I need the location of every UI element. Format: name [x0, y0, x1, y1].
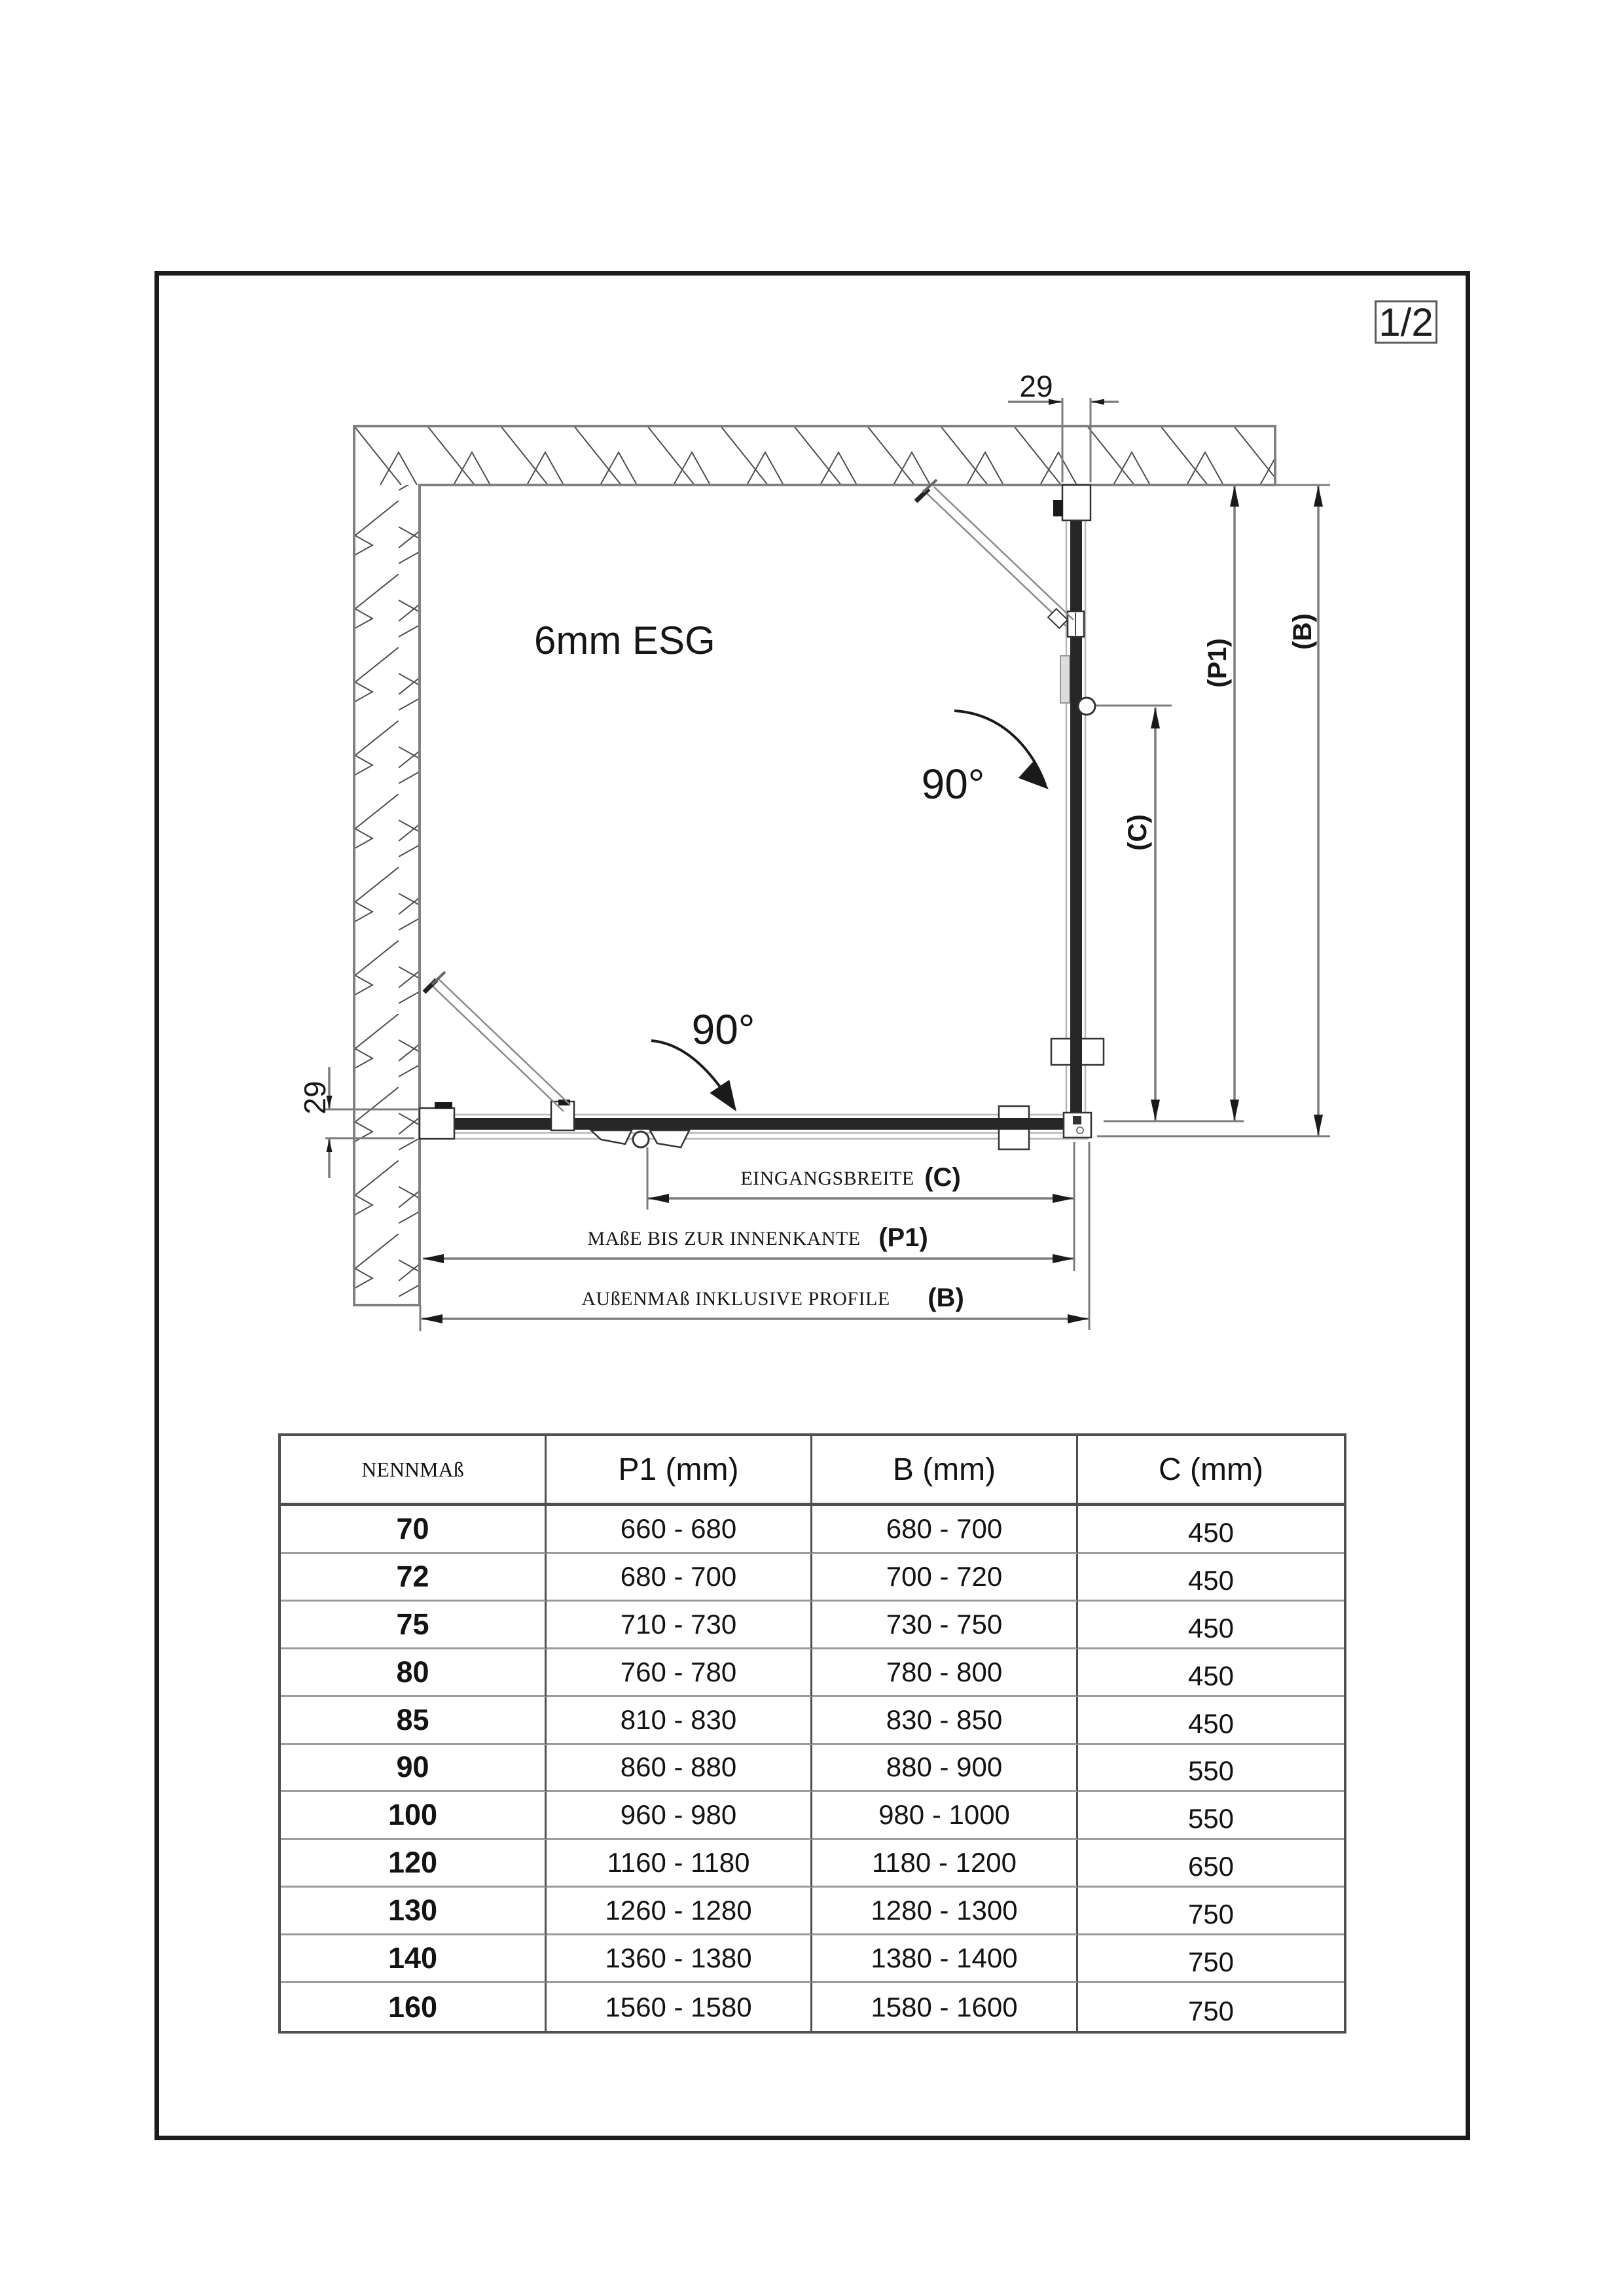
table-cell: 1380 - 1400 [812, 1935, 1078, 1983]
glass-panel-right [1070, 520, 1082, 1113]
table-cell: 780 - 800 [812, 1649, 1078, 1697]
table-cell: 90 [281, 1745, 547, 1793]
profile-outlines [455, 520, 1089, 1139]
dim-c-symbol-vertical: (C) [1123, 814, 1152, 851]
table-cell: 1280 - 1300 [812, 1888, 1078, 1935]
table-cell: 650 [1078, 1840, 1344, 1888]
dim-b-label: AUßENMAß INKLUSIVE PROFILE [581, 1288, 890, 1310]
table-cell: 140 [281, 1935, 547, 1983]
enclosure-parts [420, 485, 1104, 1149]
extension-lines [325, 398, 1330, 1331]
table-cell: 80 [281, 1649, 547, 1697]
table-cell: 750 [1078, 1888, 1344, 1935]
table-cell: 1560 - 1580 [547, 1983, 812, 2031]
table-cell: 680 - 700 [812, 1506, 1078, 1554]
table-cell: 1160 - 1180 [547, 1840, 812, 1888]
table-cell: 550 [1078, 1792, 1344, 1840]
pivot-bracket-right [1060, 656, 1070, 703]
table-cell: 450 [1078, 1697, 1344, 1745]
table-cell: 70 [281, 1506, 547, 1554]
table-cell: 550 [1078, 1745, 1344, 1793]
handle-wing-left [591, 1130, 632, 1144]
table-cell: 1180 - 1200 [812, 1840, 1078, 1888]
table-cell: 450 [1078, 1554, 1344, 1602]
dim-c-symbol: (C) [924, 1163, 961, 1192]
table-cell: 700 - 720 [812, 1554, 1078, 1602]
wall-left-hatch [354, 485, 420, 1305]
angle-label-right: 90° [922, 761, 985, 808]
dim-b-symbol: (B) [928, 1283, 964, 1312]
glass-panel-bottom [455, 1118, 1066, 1130]
dim-29-top-label: 29 [1019, 369, 1053, 403]
dim-p1-symbol-vertical: (P1) [1203, 638, 1232, 688]
table-cell: 1360 - 1380 [547, 1935, 812, 1983]
door-knob-bottom [633, 1132, 649, 1147]
table-cell: 160 [281, 1983, 547, 2031]
table-cell: 450 [1078, 1506, 1344, 1554]
document-page: 1/2 [0, 0, 1624, 2296]
table-cell: 75 [281, 1602, 547, 1649]
table-cell: 860 - 880 [547, 1745, 812, 1793]
dim-p1-label: MAßE BIS ZUR INNENKANTE [587, 1228, 860, 1249]
table-cell: 100 [281, 1792, 547, 1840]
table-cell: 450 [1078, 1649, 1344, 1697]
table-cell: 880 - 900 [812, 1745, 1078, 1793]
table-cell: 760 - 780 [547, 1649, 812, 1697]
glass-spec-label: 6mm ESG [534, 619, 715, 662]
angle-label-bottom: 90° [692, 1006, 755, 1053]
wall-profile-top-knob [1053, 500, 1063, 516]
table-cell: 680 - 700 [547, 1554, 812, 1602]
table-header-nennmass: NENNMAß [281, 1436, 547, 1506]
table-cell: 130 [281, 1888, 547, 1935]
swing-arrows [651, 711, 1056, 1118]
table-cell: 750 [1078, 1983, 1344, 2031]
wall-top-hatch [354, 426, 1275, 485]
handle-wing-right [650, 1130, 689, 1147]
dim-b-symbol-vertical: (B) [1288, 613, 1317, 650]
table-header-c: C (mm) [1078, 1436, 1344, 1506]
door-knob-right [1078, 698, 1095, 715]
table-cell: 85 [281, 1697, 547, 1745]
table-header-p1: P1 (mm) [547, 1436, 812, 1506]
table-cell: 750 [1078, 1935, 1344, 1983]
table-cell: 1580 - 1600 [812, 1983, 1078, 2031]
table-cell: 120 [281, 1840, 547, 1888]
table-cell: 1260 - 1280 [547, 1888, 812, 1935]
wall-profile-top [1062, 485, 1091, 520]
table-cell: 960 - 980 [547, 1792, 812, 1840]
dimension-table: NENNMAß P1 (mm) B (mm) C (mm) 70 660 - 6… [278, 1433, 1346, 2034]
dim-c-label: EINGANGSBREITE [740, 1168, 914, 1189]
table-cell: 710 - 730 [547, 1602, 812, 1649]
table-cell: 450 [1078, 1602, 1344, 1649]
wall-profile-left-cap [435, 1102, 452, 1109]
table-cell: 830 - 850 [812, 1697, 1078, 1745]
table-cell: 810 - 830 [547, 1697, 812, 1745]
table-cell: 980 - 1000 [812, 1792, 1078, 1840]
table-header-b: B (mm) [812, 1436, 1078, 1506]
dim-p1-symbol: (P1) [878, 1223, 928, 1252]
wall-profile-left [420, 1108, 454, 1139]
table-cell: 72 [281, 1554, 547, 1602]
door-hinge-glyphs [424, 480, 1068, 992]
table-cell: 660 - 680 [547, 1506, 812, 1554]
hinge-bottom [551, 1102, 574, 1130]
table-cell: 730 - 750 [812, 1602, 1078, 1649]
dim-29-left-label: 29 [298, 1081, 332, 1114]
